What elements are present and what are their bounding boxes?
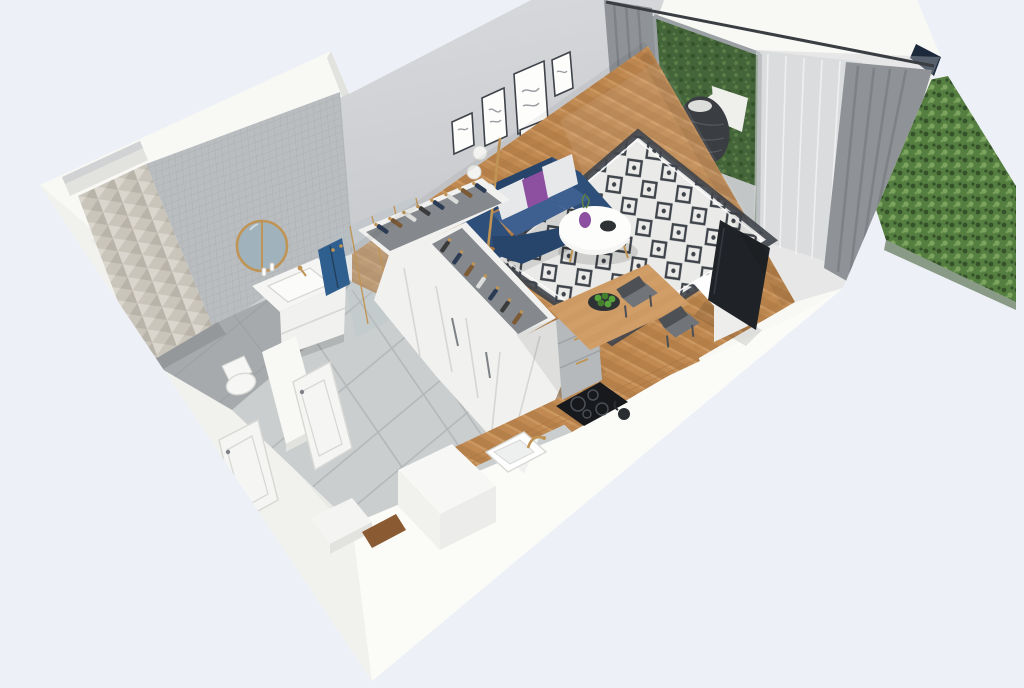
black-bowl xyxy=(600,221,616,232)
round-mirror xyxy=(237,221,287,271)
apartment-3d-render xyxy=(0,0,1024,688)
picture-frame xyxy=(482,88,507,146)
picture-frame xyxy=(552,52,573,96)
gold-hook xyxy=(331,248,335,252)
floorplan-stage xyxy=(0,0,1024,688)
purple-vase xyxy=(579,212,591,228)
gold-hook xyxy=(339,244,343,248)
